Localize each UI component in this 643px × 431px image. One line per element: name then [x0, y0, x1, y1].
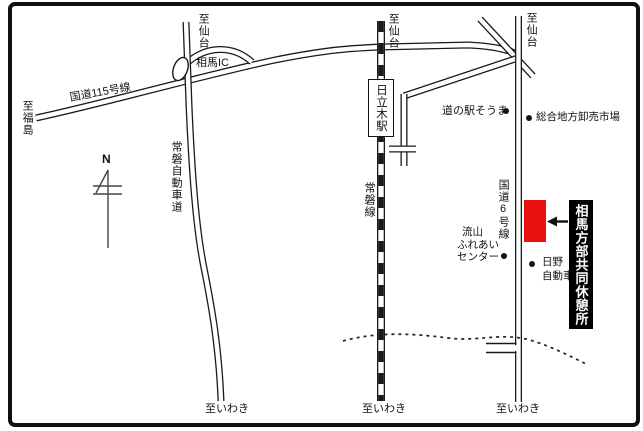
access-map: 至仙台 至仙台 至仙台 至福島 至いわき 至いわき 至いわき 国道115号線 常…	[0, 0, 643, 431]
michinoeki-soma-label: 道の駅そうま	[442, 105, 508, 117]
to-sendai-label-railway: 至仙台	[387, 13, 399, 49]
to-sendai-label-route6: 至仙台	[525, 12, 537, 48]
compass-n-label: N	[102, 153, 111, 166]
soma-ic-label: 相馬IC	[196, 57, 229, 69]
hino-motors-dot	[529, 261, 535, 267]
to-iwaki-label-railway: 至いわき	[362, 403, 406, 415]
to-sendai-label-expressway: 至仙台	[197, 13, 209, 49]
destination-label: 相馬方部共同休憩所	[572, 204, 591, 326]
wholesale-market-dot	[526, 115, 532, 121]
hitachiki-station-box: 日立木駅	[368, 79, 394, 137]
michinoeki-soma-dot	[503, 108, 509, 114]
hitachiki-station-label: 日立木駅	[373, 84, 389, 132]
destination-arrow	[547, 217, 568, 227]
diagonal-road-to-station	[404, 58, 518, 96]
destination-label-box: 相馬方部共同休憩所	[569, 200, 593, 329]
to-iwaki-label-expressway: 至いわき	[205, 403, 249, 415]
nagareyama-center-dot	[501, 253, 507, 259]
expressway-label: 常磐自動車道	[170, 141, 182, 213]
route6-side-stub	[486, 344, 518, 353]
destination-highlight-rect	[524, 200, 546, 242]
nagareyama-center-label: 流山 ふれあい センター	[457, 226, 499, 264]
railway-label: 常磐線	[363, 182, 375, 218]
north-arrow	[93, 170, 122, 248]
map-road-layer	[0, 0, 643, 431]
to-fukushima-label: 至福島	[21, 100, 33, 136]
wholesale-market-label: 総合地方卸売市場	[536, 112, 620, 124]
to-iwaki-label-route6: 至いわき	[496, 403, 540, 415]
